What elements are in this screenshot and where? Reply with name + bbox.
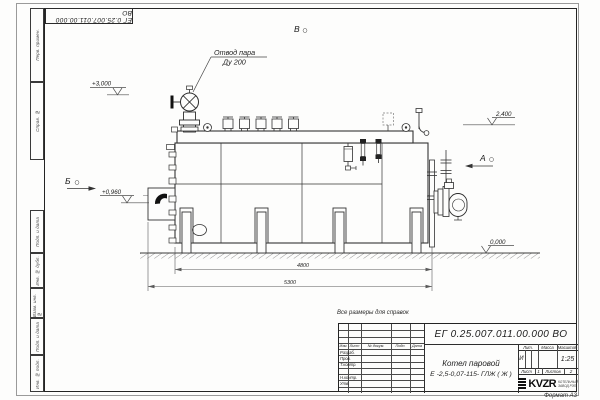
- dim-5300: 5300: [284, 280, 296, 286]
- tb-line: [391, 324, 392, 393]
- safety-valve-row: [223, 117, 299, 131]
- tb-col-data: Дата: [410, 343, 424, 349]
- view-mark-v: В: [294, 24, 307, 34]
- elevation-ground: 0,000: [472, 239, 514, 253]
- tb-line: [410, 324, 411, 393]
- ground-line: [140, 253, 540, 259]
- tb-header-mass: Масса: [538, 344, 557, 350]
- svg-text:Отвод пара: Отвод пара: [214, 48, 255, 57]
- safety-valve: [240, 117, 250, 131]
- reference-note: Все размеры для справок: [337, 310, 409, 316]
- safety-valve: [256, 117, 266, 131]
- support-foot: [180, 208, 193, 253]
- elevation-valve-top: +3,000: [90, 81, 129, 95]
- elevation-boiler-top: 2,400: [463, 111, 515, 125]
- safety-valve: [223, 117, 233, 131]
- elevation-burner-axis: +0,960: [100, 189, 149, 203]
- product-name-line1: Котел паровой: [442, 359, 499, 368]
- steam-outlet-valve: [171, 86, 200, 132]
- valve-side-handle: [171, 96, 174, 109]
- steam-outlet-callout: Отвод пара Ду 200: [193, 48, 267, 92]
- svg-text:Б: Б: [65, 176, 71, 186]
- view-mark-a: А: [465, 153, 494, 168]
- svg-text:А: А: [479, 153, 486, 163]
- svg-text:Ду 200: Ду 200: [222, 58, 246, 67]
- safety-valve: [289, 117, 299, 131]
- svg-text:+0,960: +0,960: [102, 189, 122, 196]
- tb-line: [339, 368, 424, 369]
- burner-assembly: [434, 179, 467, 220]
- tb-line: [361, 324, 362, 393]
- support-foot: [333, 208, 346, 253]
- tb-line: [339, 387, 424, 388]
- tb-row-tkontr: Т.контр.: [340, 362, 360, 368]
- tb-col-podp: Подп.: [391, 343, 410, 349]
- format-label: Формат А3: [520, 393, 577, 399]
- safety-valve: [272, 117, 282, 131]
- support-foot: [410, 208, 423, 253]
- svg-text:0,000: 0,000: [490, 239, 506, 246]
- hidden-hatch-dashed: [383, 113, 394, 125]
- title-block: ЕГ 0.25.007.011.00.000 ВО Котел паровой …: [338, 323, 577, 392]
- tb-line: [339, 330, 424, 331]
- product-name-line2: Е -2,5-0,07-115- ГЛЖ ( Ж ): [430, 371, 512, 378]
- drawing-sheet: Перв. примен. Справ. № Подп. и дата Инв.…: [0, 0, 600, 400]
- drum-top-fitting: [204, 124, 212, 132]
- boiler-body: [172, 127, 429, 243]
- logo-subtext: КОТЕЛЬНЫЙ ЗАВОД РЭП: [558, 380, 578, 388]
- company-logo: KVZR КОТЕЛЬНЫЙ ЗАВОД РЭП: [518, 374, 578, 393]
- tb-scale-value: 1:25: [557, 350, 578, 368]
- logo-text: KVZR: [528, 378, 556, 390]
- view-mark-b: Б: [65, 176, 96, 191]
- tb-col-docnum: № докум.: [361, 343, 391, 349]
- tb-designation: ЕГ 0.25.007.011.00.000 ВО: [424, 324, 578, 344]
- svg-text:2,400: 2,400: [495, 111, 512, 118]
- tb-litera-value: И: [518, 350, 525, 368]
- svg-text:+3,000: +3,000: [92, 81, 112, 88]
- svg-text:В: В: [294, 24, 300, 34]
- tb-line: [525, 350, 526, 368]
- dim-4800: 4800: [297, 263, 309, 269]
- tb-line: [339, 337, 424, 338]
- tb-line: [531, 350, 532, 368]
- logo-subtext-line2: ЗАВОД РЭП: [558, 384, 578, 388]
- support-foot: [255, 208, 268, 253]
- logo-bars-icon: [518, 378, 526, 389]
- tb-product-name: Котел паровой Е -2,5-0,07-115- ГЛЖ ( Ж ): [424, 344, 518, 393]
- tb-row-utv: Утв.: [340, 380, 360, 386]
